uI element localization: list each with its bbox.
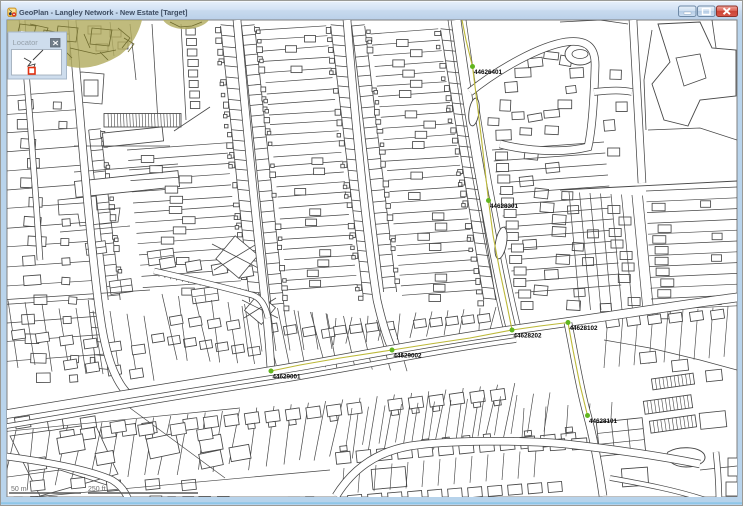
svg-text:250 ft: 250 ft: [88, 486, 106, 493]
svg-text:44628102: 44628102: [570, 325, 599, 332]
svg-text:44628202: 44628202: [514, 333, 543, 340]
svg-text:44629002: 44629002: [394, 353, 423, 360]
svg-text:44628301: 44628301: [490, 203, 519, 210]
svg-text:Locator: Locator: [13, 38, 39, 47]
svg-text:44629001: 44629001: [273, 374, 302, 381]
svg-text:50 m: 50 m: [11, 486, 27, 493]
svg-text:44628101: 44628101: [589, 418, 618, 425]
svg-text:44626401: 44626401: [474, 69, 503, 76]
svg-text:GeoPlan - Langley Network - Ne: GeoPlan - Langley Network - New Estate […: [19, 8, 188, 17]
